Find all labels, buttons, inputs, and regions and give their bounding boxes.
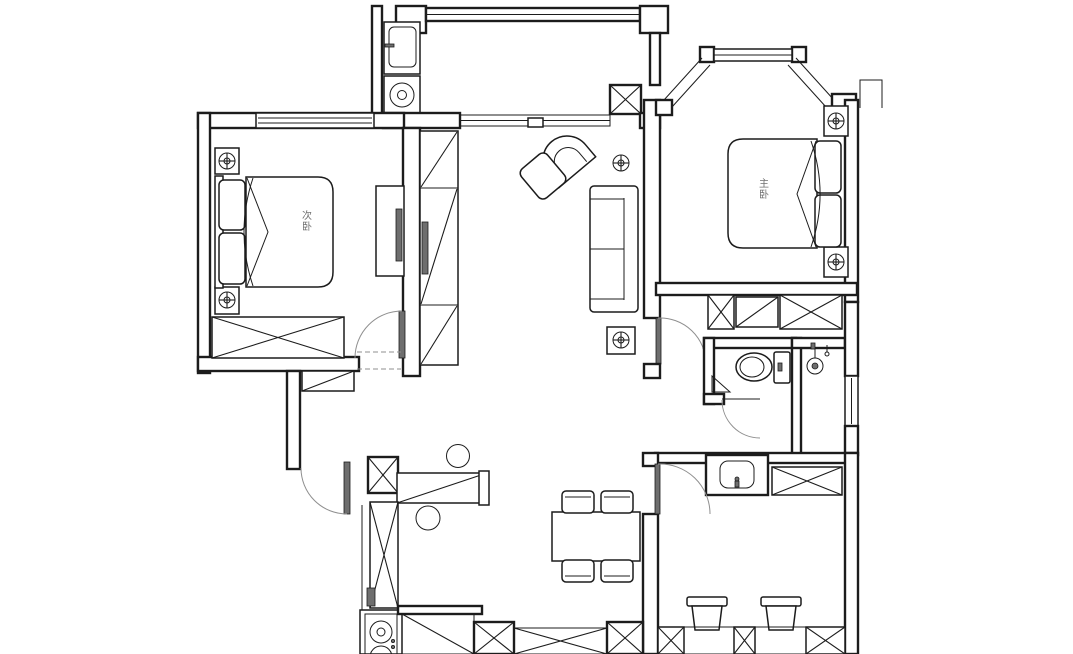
dining-area bbox=[552, 491, 640, 582]
sofa-icon bbox=[590, 186, 638, 312]
window-band bbox=[514, 628, 607, 654]
pillow-icon bbox=[815, 195, 841, 247]
kitchen-tall-cabinet-icon bbox=[367, 502, 398, 608]
ceiling-lamp-icon bbox=[613, 155, 629, 171]
tv-panel-icon bbox=[396, 209, 402, 261]
closet-cabinet-icon bbox=[708, 295, 842, 329]
bedroom-left-wall bbox=[198, 113, 210, 373]
master-bottom-wall bbox=[656, 283, 857, 295]
nightstand-icon bbox=[824, 247, 848, 277]
study-door bbox=[655, 464, 710, 514]
pillow-icon bbox=[815, 141, 841, 193]
column-icon bbox=[474, 622, 514, 654]
toilet-door bbox=[722, 399, 760, 438]
bath-divider-wall bbox=[792, 338, 801, 458]
ceiling-lamp-icon bbox=[828, 113, 844, 129]
window bbox=[256, 113, 374, 128]
window bbox=[845, 376, 858, 426]
door-swing-arc bbox=[658, 318, 706, 364]
ceiling-lamp-icon bbox=[828, 254, 844, 270]
floor-plan-drawing: 次卧 bbox=[0, 0, 1073, 654]
door-swing-arc bbox=[722, 400, 760, 438]
desk-chair-icon bbox=[687, 597, 727, 630]
bedroom-right-wall bbox=[403, 128, 420, 376]
column-icon bbox=[607, 622, 643, 654]
balcony-corner-column bbox=[640, 6, 668, 33]
tv-panel-icon bbox=[422, 222, 428, 274]
bar-stool-icon bbox=[416, 506, 440, 530]
door-swing-arc bbox=[301, 468, 347, 514]
toilet-room-bottom-wall bbox=[704, 394, 724, 404]
ceiling-lamp-icon bbox=[219, 292, 235, 308]
balcony-sliding-door bbox=[383, 113, 660, 128]
washing-machine-icon bbox=[384, 76, 420, 115]
shower-top-wall bbox=[792, 338, 845, 348]
dresser-desk-icon bbox=[376, 186, 404, 276]
laundry-balcony bbox=[372, 6, 668, 115]
shoe-cabinet-icon bbox=[302, 371, 354, 391]
dining-table-icon bbox=[552, 512, 640, 561]
balcony-left-wall bbox=[372, 6, 382, 115]
master-bedroom: 主卧 bbox=[656, 47, 882, 302]
study-room bbox=[643, 453, 858, 654]
room-label-secondary-bedroom: 次卧 bbox=[300, 209, 312, 232]
door-leaf bbox=[656, 318, 661, 364]
desk-chair-icon bbox=[761, 597, 801, 630]
closet-cabinet-icon bbox=[772, 467, 842, 495]
nightstand-icon bbox=[824, 106, 848, 136]
gas-stove-icon bbox=[360, 610, 402, 654]
bar-stool-icon bbox=[447, 445, 470, 468]
double-bed-icon bbox=[215, 176, 333, 288]
kitchen-door bbox=[301, 462, 350, 514]
double-bed-icon bbox=[728, 139, 841, 248]
nightstand-icon bbox=[215, 287, 239, 314]
secondary-bedroom: 次卧 bbox=[198, 113, 420, 376]
kitchen-bottom-wall bbox=[398, 606, 482, 614]
ac-platform bbox=[860, 80, 882, 108]
toilet-room-top-wall bbox=[704, 338, 796, 348]
column-icon bbox=[610, 85, 641, 114]
lamp-box bbox=[607, 327, 635, 354]
pillow-icon bbox=[219, 233, 245, 284]
hall-left-wall bbox=[287, 371, 300, 469]
study-left-wall bbox=[643, 514, 658, 654]
door-leaf bbox=[399, 311, 405, 358]
bedroom-bottom-wall bbox=[198, 357, 359, 371]
bar-counter-icon bbox=[397, 471, 489, 505]
dining-chair-icon bbox=[601, 560, 633, 582]
wardrobe-icon bbox=[420, 131, 458, 365]
ceiling-lamp-icon bbox=[613, 332, 629, 348]
bedroom-door bbox=[355, 311, 405, 369]
door-swing-arc bbox=[658, 464, 710, 514]
dining-chair-icon bbox=[562, 491, 594, 513]
pillow-icon bbox=[219, 180, 245, 230]
door-leaf bbox=[344, 462, 350, 514]
dining-chair-icon bbox=[562, 560, 594, 582]
window bbox=[402, 614, 474, 654]
door-swing-arc bbox=[355, 311, 402, 358]
laundry-sink-icon bbox=[384, 22, 420, 74]
washbasin-icon bbox=[706, 455, 768, 495]
column-icon bbox=[368, 457, 398, 493]
toilet-icon bbox=[736, 352, 790, 383]
door-leaf bbox=[655, 464, 660, 514]
ceiling-lamp-icon bbox=[219, 153, 235, 169]
nightstand-icon bbox=[215, 148, 239, 174]
living-room bbox=[518, 100, 660, 354]
bay-window-seat-icon bbox=[212, 317, 344, 358]
floor-plan-canvas: 次卧 bbox=[0, 0, 1073, 654]
room-label-master-bedroom: 主卧 bbox=[757, 178, 769, 200]
window-band bbox=[658, 627, 845, 654]
study-right-wall bbox=[845, 453, 858, 654]
balcony-right-wall bbox=[650, 33, 660, 85]
dining-chair-icon bbox=[601, 491, 633, 513]
